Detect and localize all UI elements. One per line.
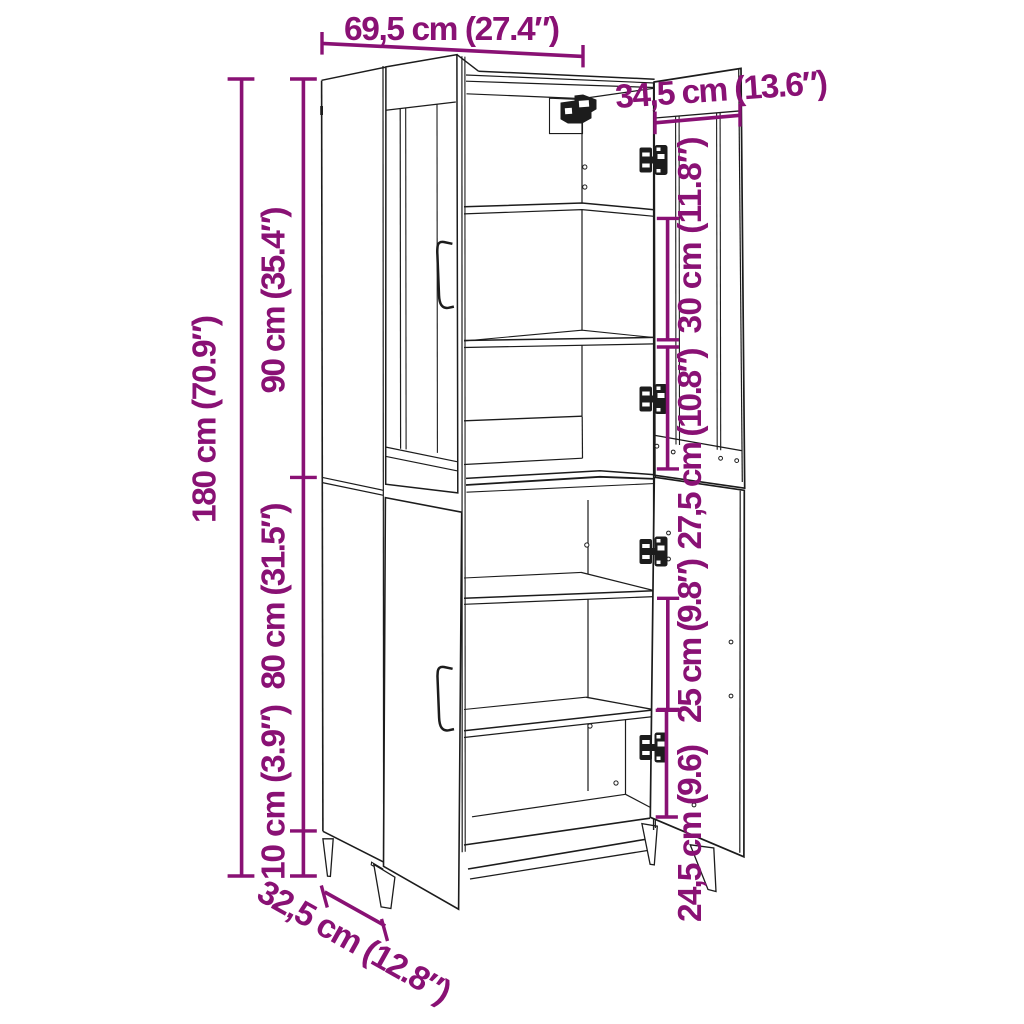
svg-text:25 cm (9.8″): 25 cm (9.8″) [672, 558, 709, 723]
svg-text:80 cm (31.5″): 80 cm (31.5″) [256, 503, 293, 690]
svg-text:180 cm (70.9″): 180 cm (70.9″) [187, 315, 224, 523]
svg-text:10 cm (3.9″): 10 cm (3.9″) [256, 704, 293, 880]
svg-text:90 cm (35.4″): 90 cm (35.4″) [256, 207, 293, 394]
svg-text:27,5 cm (10.8″): 27,5 cm (10.8″) [672, 348, 709, 550]
svg-text:24,5 cm (9.6): 24,5 cm (9.6) [672, 744, 709, 922]
svg-text:30 cm (11.8″): 30 cm (11.8″) [672, 137, 709, 334]
svg-text:69,5 cm (27.4″): 69,5 cm (27.4″) [344, 11, 560, 48]
